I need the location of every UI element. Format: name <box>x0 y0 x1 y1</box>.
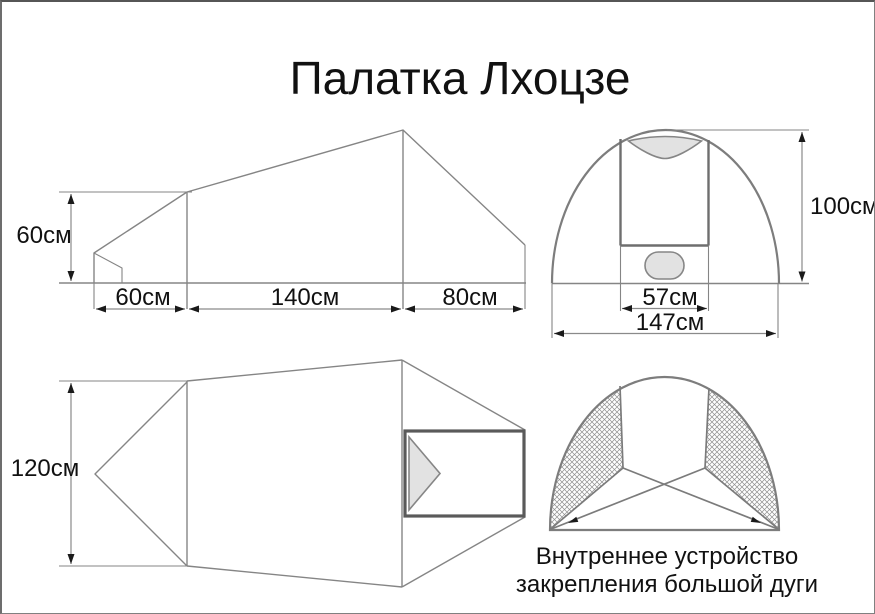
side-tent-outline <box>94 130 525 283</box>
side-view: 60см 60см 140см 80см <box>16 130 526 311</box>
front-vent-fan-shape <box>629 137 702 159</box>
side-vestibule-flap <box>94 253 122 283</box>
front-view: 57см 147см 100см <box>552 130 874 338</box>
side-body-label: 140см <box>271 284 340 311</box>
side-height-label: 60см <box>16 222 71 249</box>
front-door-width-label: 57см <box>642 284 697 311</box>
top-door-triangle <box>409 437 440 510</box>
top-view: 120см <box>11 360 525 587</box>
tent-diagram-page: Палатка Лхоцзе 60см 60см 140см 80см <box>0 0 875 614</box>
top-taper-bottom-edge <box>402 517 525 587</box>
top-taper-top-edge <box>402 360 525 430</box>
interior-caption-line2: закрепления большой дуги <box>516 571 818 598</box>
top-width-label: 120см <box>11 455 80 482</box>
front-total-width-label: 147см <box>636 309 705 336</box>
interior-view: Внутреннее устройство закрепления большо… <box>516 375 818 598</box>
front-height-label: 100см <box>810 193 874 220</box>
top-vestibule-point <box>95 382 187 566</box>
top-left-top-edge <box>187 360 402 381</box>
diagram-canvas: Палатка Лхоцзе 60см 60см 140см 80см <box>2 2 874 613</box>
top-left-bottom-edge <box>187 566 402 587</box>
side-vestibule-label: 60см <box>115 284 170 311</box>
page-title: Палатка Лхоцзе <box>290 52 631 104</box>
side-rear-label: 80см <box>442 284 497 311</box>
front-vent-oval <box>645 252 684 279</box>
interior-caption-line1: Внутреннее устройство <box>536 543 798 570</box>
